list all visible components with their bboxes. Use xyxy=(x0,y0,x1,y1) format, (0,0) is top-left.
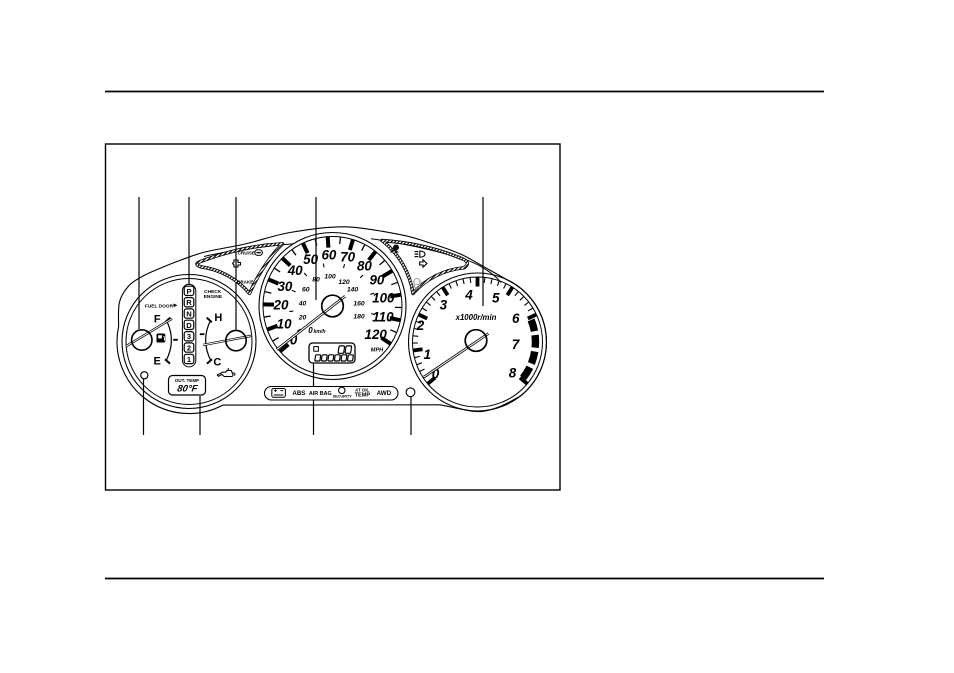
svg-text:3: 3 xyxy=(440,297,448,312)
svg-text:120: 120 xyxy=(338,279,350,286)
svg-text:20: 20 xyxy=(273,298,289,313)
svg-text:180: 180 xyxy=(353,313,365,320)
svg-text:R: R xyxy=(186,298,192,307)
svg-text:ENGINE: ENGINE xyxy=(204,294,223,300)
svg-text:1: 1 xyxy=(424,347,432,362)
svg-text:FUEL DOOR: FUEL DOOR xyxy=(145,304,174,310)
svg-text:C: C xyxy=(213,356,221,368)
svg-text:MPH: MPH xyxy=(371,348,384,354)
svg-text:10: 10 xyxy=(277,316,292,331)
svg-text:100: 100 xyxy=(324,273,336,280)
svg-text:6: 6 xyxy=(512,311,520,326)
svg-text:120: 120 xyxy=(365,327,388,342)
svg-text:7: 7 xyxy=(512,337,521,352)
svg-text:D: D xyxy=(186,321,192,330)
svg-text:4: 4 xyxy=(464,287,473,302)
svg-text:90: 90 xyxy=(369,273,384,288)
svg-text:80°F: 80°F xyxy=(176,384,199,395)
svg-text:100: 100 xyxy=(372,291,395,306)
svg-text:F: F xyxy=(154,313,161,325)
svg-text:CRUISE: CRUISE xyxy=(238,251,255,256)
svg-text:80: 80 xyxy=(357,258,372,273)
svg-text:70: 70 xyxy=(340,250,355,265)
svg-text:AWD: AWD xyxy=(377,390,392,397)
svg-text:60: 60 xyxy=(321,247,336,262)
svg-text:20: 20 xyxy=(298,314,307,321)
svg-text:2: 2 xyxy=(187,344,191,353)
svg-text:AIR BAG: AIR BAG xyxy=(309,391,332,397)
svg-text:5: 5 xyxy=(492,291,500,306)
svg-text:P: P xyxy=(186,287,191,296)
svg-text:km/h: km/h xyxy=(313,329,325,335)
svg-text:TEMP: TEMP xyxy=(355,393,371,399)
svg-text:E: E xyxy=(154,355,161,367)
svg-text:x1000r/min: x1000r/min xyxy=(455,313,497,322)
svg-text:3: 3 xyxy=(187,332,191,341)
svg-text:60: 60 xyxy=(302,286,310,293)
svg-text:N: N xyxy=(186,310,191,319)
svg-text:80: 80 xyxy=(312,276,320,283)
svg-text:OUT. TEMP: OUT. TEMP xyxy=(175,378,200,383)
svg-text:160: 160 xyxy=(353,300,365,307)
svg-text:2: 2 xyxy=(416,318,425,333)
svg-text:140: 140 xyxy=(347,286,359,293)
svg-text:40: 40 xyxy=(298,300,307,307)
svg-text:50: 50 xyxy=(303,252,318,267)
svg-text:BRAKE: BRAKE xyxy=(237,279,253,284)
svg-text:8: 8 xyxy=(509,365,517,380)
svg-text:30: 30 xyxy=(277,279,292,294)
svg-text:ABS: ABS xyxy=(292,390,305,397)
svg-text:SECURITY: SECURITY xyxy=(333,394,353,398)
svg-text:H: H xyxy=(214,312,222,324)
svg-text:110: 110 xyxy=(372,309,394,324)
svg-text:40: 40 xyxy=(287,263,303,278)
